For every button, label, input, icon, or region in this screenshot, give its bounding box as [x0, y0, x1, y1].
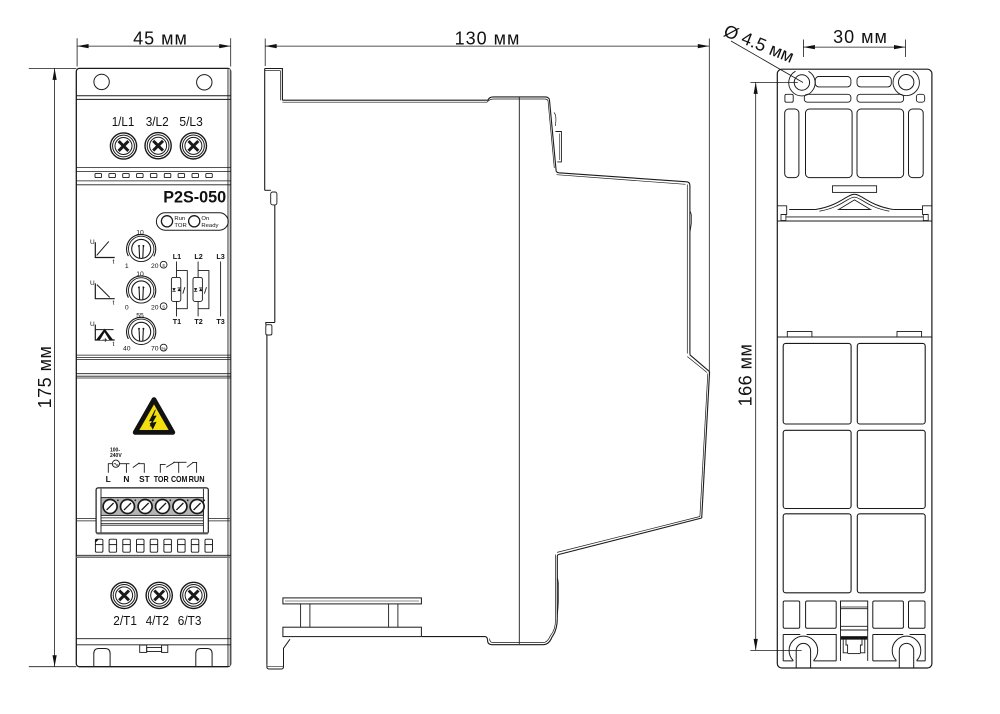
- svg-text:On: On: [201, 216, 209, 222]
- svg-text:130 мм: 130 мм: [455, 29, 521, 49]
- svg-text:2/T1: 2/T1: [113, 613, 137, 628]
- svg-text:%: %: [162, 346, 166, 351]
- svg-text:10: 10: [136, 229, 144, 236]
- svg-text:L1: L1: [173, 252, 181, 261]
- svg-text:TOR: TOR: [154, 474, 169, 484]
- svg-text:Ready: Ready: [201, 223, 218, 229]
- svg-text:t: t: [113, 341, 115, 348]
- svg-text:1: 1: [125, 263, 129, 270]
- svg-text:P2S-050: P2S-050: [163, 188, 226, 206]
- svg-text:T3: T3: [216, 317, 224, 326]
- svg-text:L2: L2: [194, 252, 202, 261]
- svg-text:COM: COM: [171, 474, 188, 484]
- svg-text:240V: 240V: [110, 453, 122, 459]
- svg-text:20: 20: [151, 263, 159, 270]
- svg-text:U: U: [90, 239, 95, 246]
- svg-text:0: 0: [125, 304, 129, 311]
- svg-text:t: t: [113, 259, 115, 266]
- svg-text:L: L: [106, 474, 111, 484]
- svg-text:175 мм: 175 мм: [35, 346, 55, 409]
- svg-text:T1: T1: [173, 317, 181, 326]
- svg-text:6/T3: 6/T3: [178, 613, 202, 628]
- svg-text:RUN: RUN: [189, 474, 205, 484]
- svg-text:U: U: [90, 280, 95, 287]
- svg-text:30 мм: 30 мм: [833, 27, 888, 47]
- svg-text:Run: Run: [174, 216, 185, 222]
- svg-text:t: t: [113, 300, 115, 307]
- svg-text:1/L1: 1/L1: [112, 114, 135, 129]
- svg-text:TOR: TOR: [174, 223, 186, 229]
- svg-text:L3: L3: [216, 252, 224, 261]
- svg-text:40: 40: [123, 346, 131, 353]
- svg-text:45 мм: 45 мм: [133, 29, 188, 49]
- svg-text:5/L3: 5/L3: [179, 114, 202, 129]
- svg-text:20: 20: [151, 304, 159, 311]
- svg-text:166 мм: 166 мм: [736, 344, 756, 407]
- svg-text:10: 10: [136, 271, 144, 278]
- svg-text:55: 55: [136, 312, 144, 319]
- svg-text:4/T2: 4/T2: [146, 613, 169, 628]
- svg-text:70: 70: [151, 346, 159, 353]
- svg-text:N: N: [123, 474, 129, 484]
- svg-text:3/L2: 3/L2: [146, 114, 169, 129]
- svg-text:U: U: [90, 321, 95, 328]
- svg-text:T2: T2: [194, 317, 202, 326]
- svg-text:ST: ST: [139, 474, 150, 484]
